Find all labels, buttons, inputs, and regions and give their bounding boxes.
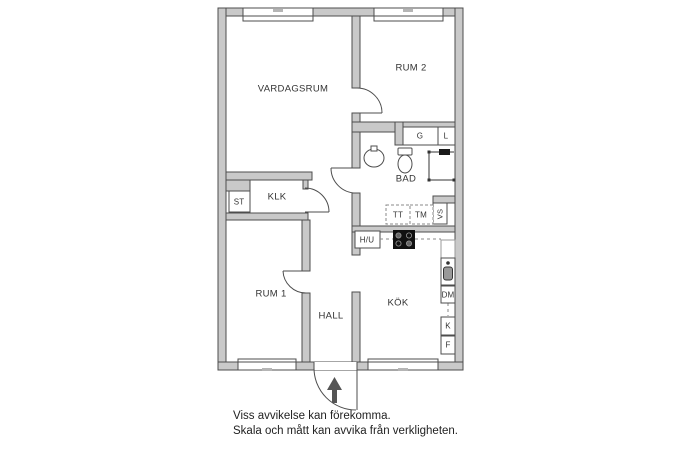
room-label-vardagsrum: VARDAGSRUM xyxy=(258,84,328,95)
label-l: L xyxy=(444,132,449,141)
label-tm: TM xyxy=(415,211,427,220)
entrance-arrow-icon xyxy=(327,377,342,403)
toilet-icon xyxy=(398,148,412,173)
stove-icon xyxy=(393,230,415,249)
doors xyxy=(283,88,382,293)
label-vs: VS xyxy=(436,209,445,220)
door-rum2 xyxy=(357,88,382,113)
window-rum2 xyxy=(374,8,443,21)
disclaimer-line-2: Skala och mått kan avvika från verklighe… xyxy=(233,424,458,439)
label-f: F xyxy=(445,341,450,350)
room-label-rum2: RUM 2 xyxy=(395,63,426,74)
door-bad xyxy=(331,168,356,193)
window-rum1 xyxy=(238,359,296,371)
room-label-kok: KÖK xyxy=(388,298,409,309)
disclaimer-text: Viss avvikelse kan förekomma. Skala och … xyxy=(233,409,458,438)
room-label-bad: BAD xyxy=(396,174,416,185)
label-hu: H/U xyxy=(360,236,374,245)
door-klk xyxy=(305,188,329,212)
label-dm: DM xyxy=(442,291,455,300)
room-label-klk: KLK xyxy=(268,192,287,203)
label-k: K xyxy=(445,322,451,331)
window-kok xyxy=(368,359,438,371)
room-label-rum1: RUM 1 xyxy=(255,289,286,300)
label-st: ST xyxy=(234,198,245,207)
disclaimer-line-1: Viss avvikelse kan förekomma. xyxy=(233,409,458,424)
window-vardagsrum xyxy=(243,8,313,21)
shower-icon xyxy=(428,149,456,182)
label-g: G xyxy=(417,132,423,141)
sink-icon xyxy=(364,146,384,167)
floor-plan-drawing xyxy=(0,0,690,460)
room-label-hall: HALL xyxy=(319,311,344,322)
floor-plan-page: VARDAGSRUM RUM 2 BAD KLK RUM 1 HALL KÖK … xyxy=(0,0,690,460)
label-tt: TT xyxy=(393,211,403,220)
